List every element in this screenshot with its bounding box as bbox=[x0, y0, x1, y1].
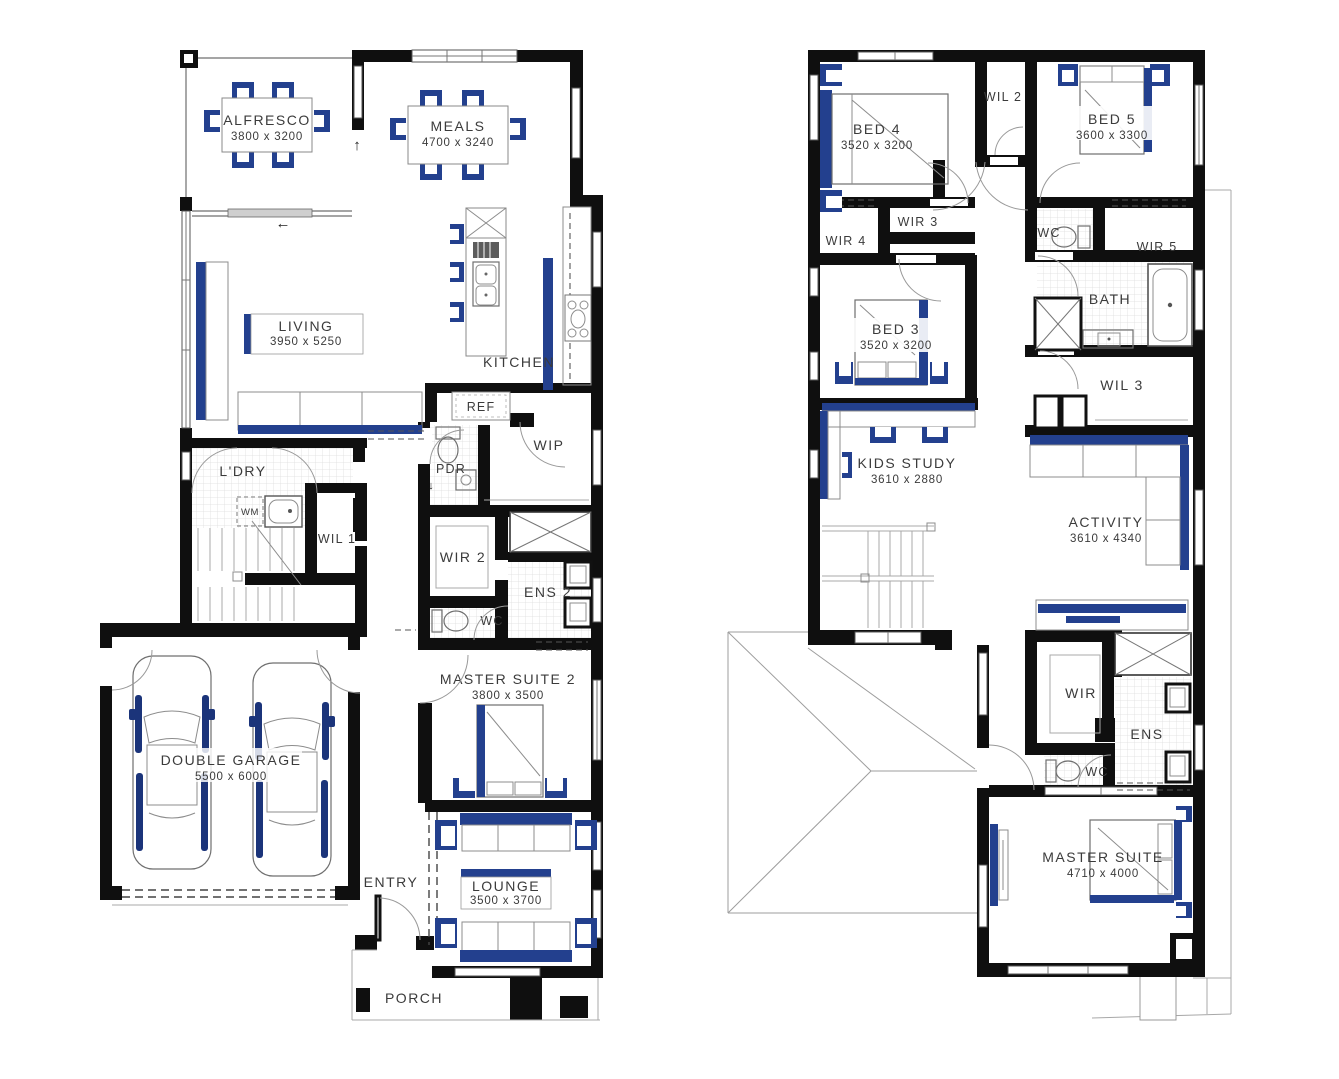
corner-post-inner bbox=[184, 54, 193, 63]
room-dims-garage: 5500 x 6000 bbox=[195, 771, 267, 783]
room-dims-living: 3950 x 5250 bbox=[270, 336, 342, 348]
first-stairs bbox=[822, 523, 935, 628]
room-dims-bed3: 3520 x 3200 bbox=[860, 340, 932, 352]
room-label-activity: ACTIVITY bbox=[1068, 514, 1143, 530]
wil3-cupboards bbox=[1035, 396, 1188, 428]
room-dims-master-suite2: 3800 x 3500 bbox=[472, 690, 544, 702]
floor-plan-drawing: ← ↑ ALFRESCO 3800 x 3200 MEALS 4700 x 32… bbox=[0, 0, 1339, 1079]
room-label-wc-master: WC bbox=[1085, 765, 1108, 779]
ground-stairs bbox=[198, 521, 301, 621]
first-floor-plan: BED 4 3520 x 3200 WIL 2 BED 5 3600 x 330… bbox=[728, 50, 1231, 1020]
room-label-living: LIVING bbox=[279, 318, 334, 334]
corner-block-inner bbox=[1176, 939, 1192, 959]
room-label-meals: MEALS bbox=[431, 118, 486, 134]
room-dims-master-suite: 4710 x 4000 bbox=[1067, 868, 1139, 880]
door-direction-arrow-icon: ↑ bbox=[353, 137, 361, 154]
room-label-wir2: WIR 2 bbox=[440, 549, 486, 565]
room-label-alfresco: ALFRESCO bbox=[223, 112, 310, 128]
room-label-bed5: BED 5 bbox=[1088, 111, 1136, 127]
first-windows bbox=[810, 52, 1203, 974]
room-dims-kids-study: 3610 x 2880 bbox=[871, 474, 943, 486]
room-label-wil3: WIL 3 bbox=[1100, 377, 1144, 393]
room-label-wil2: WIL 2 bbox=[984, 90, 1022, 104]
room-label-lounge: LOUNGE bbox=[472, 878, 540, 894]
room-label-porch: PORCH bbox=[385, 990, 443, 1006]
linen-cupboard-first bbox=[1115, 633, 1191, 675]
meals-table-setting bbox=[390, 90, 526, 180]
room-label-bed3: BED 3 bbox=[872, 321, 920, 337]
room-dims-alfresco: 3800 x 3200 bbox=[231, 131, 303, 143]
room-label-wil1: WIL 1 bbox=[318, 532, 356, 546]
tv-unit bbox=[1036, 600, 1188, 630]
activity-furniture bbox=[1030, 435, 1189, 570]
room-label-pdr: PDR bbox=[436, 462, 466, 476]
room-dims-bed5: 3600 x 3300 bbox=[1076, 130, 1148, 142]
sliding-door-panel bbox=[228, 209, 312, 217]
linen-cupboard bbox=[510, 512, 591, 552]
garage-door-dashes bbox=[112, 890, 348, 905]
slide-direction-arrow-icon: ← bbox=[276, 215, 291, 232]
roof-outline bbox=[728, 632, 977, 913]
room-label-ref: REF bbox=[467, 400, 496, 414]
ground-floor-plan: ← ↑ ALFRESCO 3800 x 3200 MEALS 4700 x 32… bbox=[100, 50, 603, 1020]
front-door bbox=[376, 896, 420, 940]
room-dims-activity: 3610 x 4340 bbox=[1070, 533, 1142, 545]
room-label-garage: DOUBLE GARAGE bbox=[161, 752, 302, 768]
kitchen-bench bbox=[563, 207, 591, 385]
room-label-bed4: BED 4 bbox=[853, 121, 901, 137]
door-direction-arrow-icon: ↓ bbox=[428, 480, 434, 492]
room-label-master-suite2: MASTER SUITE 2 bbox=[440, 671, 576, 687]
master-suite2-furniture bbox=[453, 705, 567, 798]
room-label-master-suite: MASTER SUITE bbox=[1042, 849, 1163, 865]
room-dims-lounge: 3500 x 3700 bbox=[470, 895, 542, 907]
floor-plan-page: ← ↑ ALFRESCO 3800 x 3200 MEALS 4700 x 32… bbox=[0, 0, 1339, 1079]
room-dims-bed4: 3520 x 3200 bbox=[841, 140, 913, 152]
room-label-wir5: WIR 5 bbox=[1137, 240, 1178, 254]
bed4-furniture bbox=[820, 64, 948, 212]
label-washing-machine: WM bbox=[241, 507, 259, 518]
room-label-wir: WIR bbox=[1065, 685, 1097, 701]
room-label-kids-study: KIDS STUDY bbox=[857, 455, 956, 471]
room-label-ens: ENS bbox=[1130, 726, 1163, 742]
room-label-wc-upper: WC bbox=[1037, 226, 1060, 240]
room-dims-meals: 4700 x 3240 bbox=[422, 137, 494, 149]
room-label-ens2: ENS 2 bbox=[524, 584, 572, 600]
room-label-wir4: WIR 4 bbox=[826, 234, 867, 248]
room-label-ldry: L'DRY bbox=[219, 463, 266, 479]
room-label-bath: BATH bbox=[1089, 291, 1131, 307]
room-label-kitchen: KITCHEN bbox=[483, 354, 555, 370]
room-label-entry: ENTRY bbox=[364, 874, 419, 890]
kitchen-island bbox=[450, 208, 506, 356]
room-label-wir3: WIR 3 bbox=[898, 215, 939, 229]
first-walls bbox=[808, 50, 1205, 977]
room-label-wip: WIP bbox=[534, 437, 565, 453]
